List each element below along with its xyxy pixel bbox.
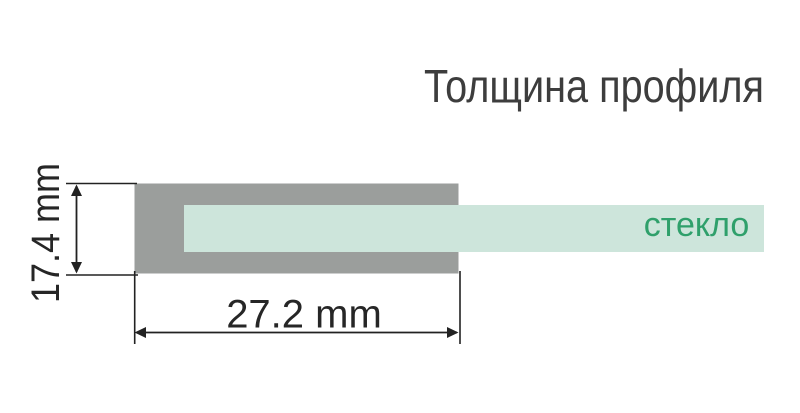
svg-text:Толщина профиля: Толщина профиля [424, 60, 764, 112]
svg-text:27.2 mm: 27.2 mm [226, 293, 382, 337]
svg-text:17.4 mm: 17.4 mm [24, 163, 68, 303]
svg-text:стекло: стекло [644, 206, 750, 244]
